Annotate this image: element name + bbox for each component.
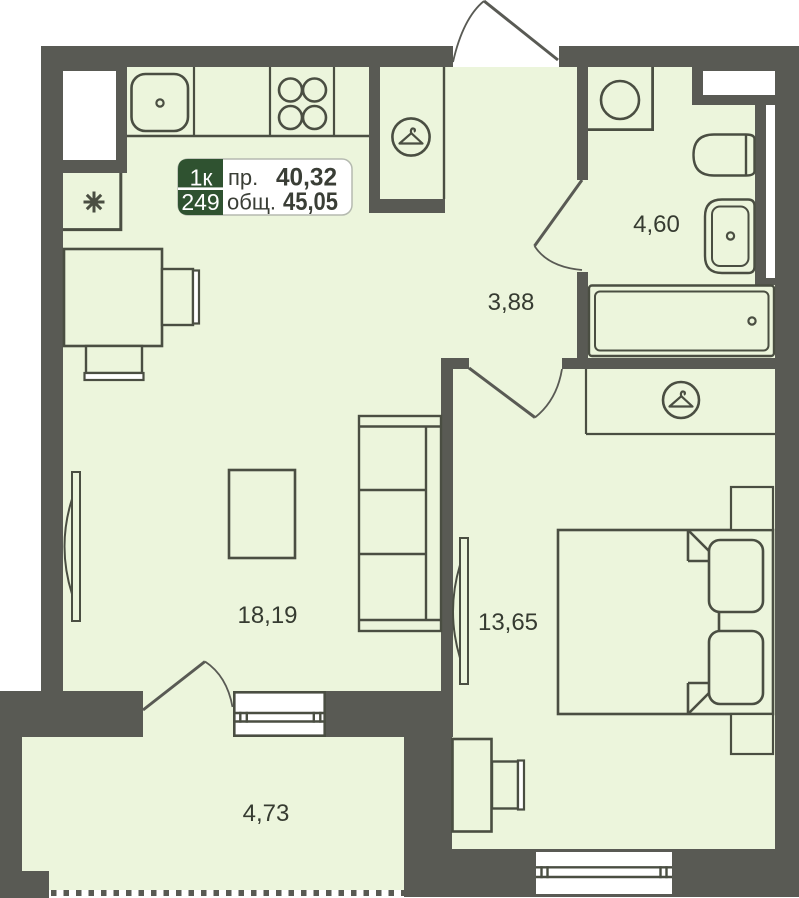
svg-text:249: 249 <box>181 189 219 215</box>
svg-text:общ.: общ. <box>227 190 276 215</box>
svg-text:4,73: 4,73 <box>243 800 290 827</box>
svg-text:45,05: 45,05 <box>283 188 338 216</box>
svg-text:4,60: 4,60 <box>633 211 680 238</box>
svg-text:3,88: 3,88 <box>488 289 535 316</box>
svg-text:13,65: 13,65 <box>478 609 538 636</box>
svg-text:1к: 1к <box>190 165 214 191</box>
svg-text:18,19: 18,19 <box>237 602 297 629</box>
svg-text:пр.: пр. <box>228 165 258 190</box>
